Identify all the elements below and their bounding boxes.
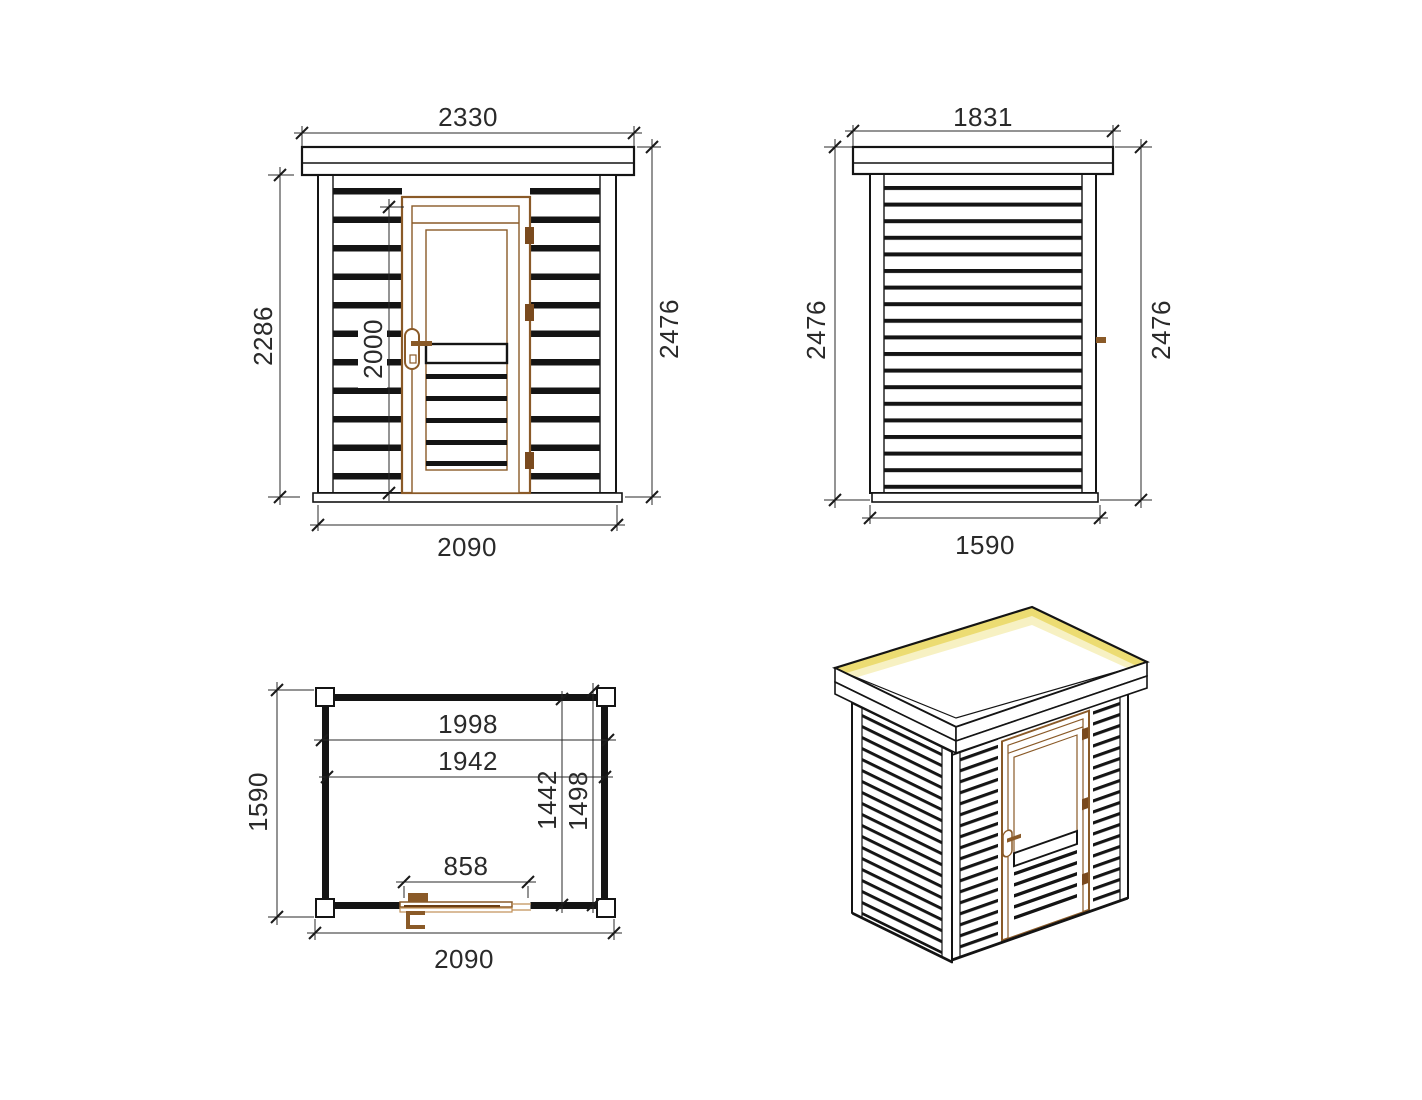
side-elevation-view: 1831 2476 2476 1590 xyxy=(801,102,1176,560)
dim-side-base-depth: 1590 xyxy=(862,505,1108,560)
dim-label-plan-inner-width-a: 1998 xyxy=(438,709,498,739)
dim-label-side-height-left: 2476 xyxy=(801,300,831,360)
dim-label-plan-inner-depth-b: 1498 xyxy=(563,771,593,831)
plan-wall-bottom-left xyxy=(334,902,402,909)
side-door-handle-icon xyxy=(1096,337,1106,343)
drawing-canvas: 2330 2286 2000 2476 2090 xyxy=(0,0,1422,1100)
dim-label-plan-depth: 1590 xyxy=(243,772,273,832)
dim-label-front-door-height: 2000 xyxy=(358,319,388,379)
dim-plan-depth: 1590 xyxy=(243,682,314,925)
dim-plan-door-opening: 858 xyxy=(396,851,536,898)
dim-side-roof-depth: 1831 xyxy=(845,102,1121,146)
side-wall xyxy=(870,174,1096,493)
front-elevation-view: 2330 2286 2000 2476 2090 xyxy=(248,102,684,562)
dim-front-total-height: 2476 xyxy=(625,139,684,505)
dim-label-front-roof-width: 2330 xyxy=(438,102,498,132)
dim-plan-inner-depth-b: 1498 xyxy=(563,683,599,913)
front-door-midrail xyxy=(426,344,507,363)
dim-label-side-roof-depth: 1831 xyxy=(953,102,1013,132)
front-base xyxy=(313,493,622,502)
dim-plan-width: 2090 xyxy=(307,919,622,974)
technical-drawing-page: 2330 2286 2000 2476 2090 xyxy=(0,0,1422,1100)
dim-plan-inner-width-a: 1998 xyxy=(314,709,616,746)
dim-front-wall-height: 2286 xyxy=(248,167,300,505)
dim-label-side-height-right: 2476 xyxy=(1146,300,1176,360)
plan-wall-right xyxy=(601,706,608,899)
dim-front-roof-width: 2330 xyxy=(294,102,642,146)
dim-label-front-wall-height: 2286 xyxy=(248,306,278,366)
front-door xyxy=(402,197,534,493)
door-lever-icon xyxy=(411,341,432,346)
floor-plan-view: 1998 1942 1442 1498 858 1590 xyxy=(243,682,622,974)
dim-side-height-left: 2476 xyxy=(801,139,870,508)
plan-wall-top xyxy=(334,694,597,701)
dim-label-front-total-height: 2476 xyxy=(654,299,684,359)
dim-label-front-base-width: 2090 xyxy=(437,532,497,562)
dim-side-height-right: 2476 xyxy=(1100,139,1176,508)
dim-label-plan-inner-depth-a: 1442 xyxy=(532,770,562,830)
side-wall-planks xyxy=(884,174,1082,493)
iso-door-handle-icon xyxy=(1003,829,1012,858)
dim-front-base-width: 2090 xyxy=(310,505,625,562)
iso-door xyxy=(998,705,1093,943)
side-base xyxy=(872,493,1098,502)
dim-label-plan-door-opening: 858 xyxy=(444,851,489,881)
front-roof xyxy=(302,147,634,175)
isometric-view xyxy=(835,607,1147,962)
front-wall-planks-right xyxy=(530,175,600,493)
dim-label-plan-inner-width-b: 1942 xyxy=(438,746,498,776)
dim-label-side-base-depth: 1590 xyxy=(955,530,1015,560)
side-roof xyxy=(853,147,1113,174)
door-keyhole-icon xyxy=(410,355,416,363)
plan-door xyxy=(400,893,531,927)
dim-label-plan-width: 2090 xyxy=(434,944,494,974)
